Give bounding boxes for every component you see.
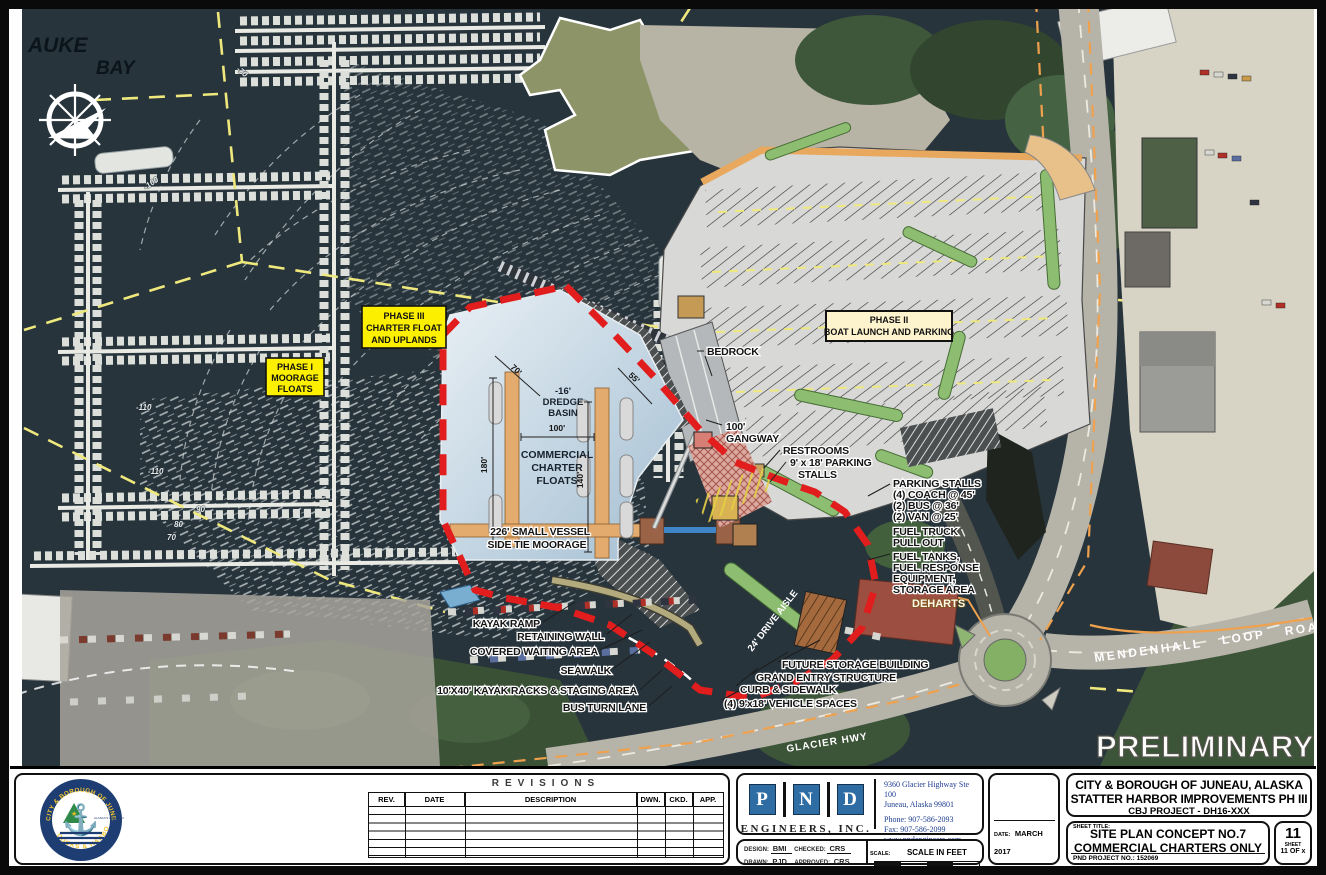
charter-line: COMMERCIAL (521, 449, 594, 461)
sheet-title-label: SHEET TITLE: (1073, 824, 1110, 830)
rev-col-header: DWN. (637, 793, 665, 806)
project-line: CBJ PROJECT - DH16-XXX (1068, 806, 1310, 817)
sheet-number-box: 11 SHEET 11 OF x (1274, 821, 1312, 865)
charter-line: FLOATS (536, 475, 577, 487)
project-line: CITY & BOROUGH OF JUNEAU, ALASKA (1068, 778, 1310, 792)
stalls-label: 9' x 18' PARKING (790, 457, 872, 469)
contour-label: 70 (167, 533, 176, 542)
approved-value: CRS (832, 857, 856, 867)
contour-label: -110 (136, 403, 152, 412)
pnd-address-line: Juneau, Alaska 99801 (884, 800, 982, 810)
rev-col-header: DESCRIPTION (465, 793, 637, 806)
rev-col-header: REV. (369, 793, 405, 806)
dredge-line: BASIN (548, 408, 578, 419)
pnd-contact-line: Fax: 907-586-2099 (884, 825, 982, 835)
dim-180: 180' (479, 457, 489, 473)
design-label: DESIGN: (744, 847, 769, 853)
phase3-line: AND UPLANDS (371, 335, 437, 345)
gangway-label: GANGWAY (726, 433, 779, 445)
scale-0: 0 (870, 868, 874, 875)
scale-label: SCALE: (870, 851, 890, 857)
bedrock-label: BEDROCK (707, 346, 759, 358)
pnd-projno-label: PND PROJECT NO.: (1073, 855, 1135, 862)
phase3-line: PHASE III (383, 311, 424, 321)
pnd-address-line: 9360 Glacier Highway Ste 100 (884, 780, 982, 800)
kayak-ramp-label: KAYAK RAMP (473, 618, 540, 630)
bus-turn-label: BUS TURN LANE (563, 702, 646, 714)
scale-120: 120 FT. (960, 868, 982, 875)
charter-line: CHARTER (531, 462, 583, 474)
bay-label: BAY (96, 58, 137, 79)
auke-label: AUKE (27, 34, 88, 57)
phase3-line: CHARTER FLOAT (366, 323, 442, 333)
checked-label: CHECKED: (794, 847, 826, 853)
phase1-label: PHASE I MOORAGE FLOATS (266, 358, 324, 396)
project-title-box: CITY & BOROUGH OF JUNEAU, ALASKA STATTER… (1066, 773, 1312, 817)
pnd-letter: D (837, 784, 864, 815)
sheet-title-box: SHEET TITLE: SITE PLAN CONCEPT NO.7 COMM… (1066, 821, 1270, 865)
contour-label: 80 (174, 520, 183, 529)
cbj-docks-harbors-logo-icon: CITY & BOROUGH OF JUNEAU DOCKS & HARBORS… (38, 777, 124, 863)
rev-col-header: APP. (693, 793, 723, 806)
grand-entry-label: GRAND ENTRY STRUCTURE (756, 672, 896, 684)
contour-label: 90 (196, 505, 205, 514)
kayak-racks-label: 10'X40' KAYAK RACKS & STAGING AREA (437, 685, 638, 697)
pnd-firm-name: ENGINEERS, INC. (738, 823, 874, 835)
stamp-date-box: DATE: MARCH 2017 (988, 773, 1060, 865)
dim-100: 100' (549, 423, 565, 433)
date-label: DATE: (994, 832, 1010, 838)
logo-star: ★ (71, 810, 77, 818)
revisions-title: REVISIONS (368, 778, 724, 791)
scale-title: SCALE IN FEET (907, 848, 967, 857)
vessel-line: SIDE TIE MOORAGE (488, 539, 587, 551)
parking-list-line: STORAGE AREA (893, 584, 975, 596)
gangway-label: 100' (726, 421, 745, 433)
project-line: STATTER HARBOR IMPROVEMENTS PH III (1068, 792, 1310, 806)
parking-list-line: (2) VAN @ 25' (893, 511, 958, 523)
sheet-number: 11 (1276, 825, 1310, 842)
phase1-line: PHASE I (277, 362, 313, 372)
design-value: BMI (771, 844, 793, 854)
phase2-line: PHASE II (870, 315, 909, 325)
pnd-letter: N (793, 784, 820, 815)
dredge-line: -16' (555, 386, 571, 397)
pnd-engineers-box: P N D ENGINEERS, INC. 9360 Glacier Highw… (736, 773, 984, 835)
logo-inner-text: ALASKA'S CAPITAL CITY (94, 816, 124, 820)
signatures-scale-box: DESIGN: BMI CHECKED: CRS DRAWN: PJD APPR… (736, 839, 984, 865)
checked-value: CRS (827, 844, 851, 854)
pnd-letter: P (749, 784, 776, 815)
phase1-line: FLOATS (277, 384, 312, 394)
title-block: CITY & BOROUGH OF JUNEAU DOCKS & HARBORS… (10, 766, 1316, 870)
drawn-label: DRAWN: (744, 860, 769, 866)
preliminary-watermark: PRELIMINARY (1096, 729, 1314, 764)
scale-bar (874, 861, 980, 868)
drawn-value: PJD (770, 857, 793, 867)
pnd-contact-line: Phone: 907-586-2093 (884, 815, 982, 825)
site-plan-map: 180' 140' 100' 70' 55' (0, 0, 1326, 875)
rev-col-header: CKD. (665, 793, 693, 806)
contour-label: -110 (148, 467, 164, 476)
seawalk-label: SEAWALK (560, 665, 611, 677)
phase2-label: PHASE II BOAT LAUNCH AND PARKING (824, 311, 954, 341)
approved-label: APPROVED: (794, 860, 830, 866)
future-storage-label: FUTURE STORAGE BUILDING (782, 659, 928, 671)
vessel-line: 226' SMALL VESSEL (490, 526, 591, 538)
dredge-line: DREDGE (543, 397, 584, 408)
rev-col-header: DATE (405, 793, 465, 806)
covered-waiting-label: COVERED WAITING AREA (470, 646, 599, 658)
curb-sidewalk-label: CURB & SIDEWALK (740, 684, 837, 696)
plan-sheet: 180' 140' 100' 70' 55' (0, 0, 1326, 875)
sheet-of: 11 OF x (1276, 848, 1310, 855)
pnd-projno-value: 152069 (1137, 855, 1159, 862)
phase2-line: BOAT LAUNCH AND PARKING (824, 327, 954, 337)
revisions-empty-rows (369, 807, 723, 857)
pnd-logo: P N D (738, 782, 874, 817)
phase1-line: MOORAGE (271, 373, 319, 383)
revisions-table: REVISIONS REV. DATE DESCRIPTION DWN. CKD… (368, 778, 724, 860)
stalls-label: STALLS (798, 469, 837, 481)
vehicle-spaces-label: (4) 9'x18' VEHICLE SPACES (724, 698, 857, 710)
parking-list-line: PULL OUT (893, 537, 944, 549)
revisions-box: CITY & BOROUGH OF JUNEAU DOCKS & HARBORS… (14, 773, 730, 865)
deharts-label: DEHARTS (912, 598, 965, 610)
scale-60: 60 (913, 868, 920, 875)
phase3-label: PHASE III CHARTER FLOAT AND UPLANDS (362, 306, 446, 348)
restrooms-label: RESTROOMS (783, 445, 849, 457)
retaining-wall-label: RETAINING WALL (517, 631, 605, 643)
